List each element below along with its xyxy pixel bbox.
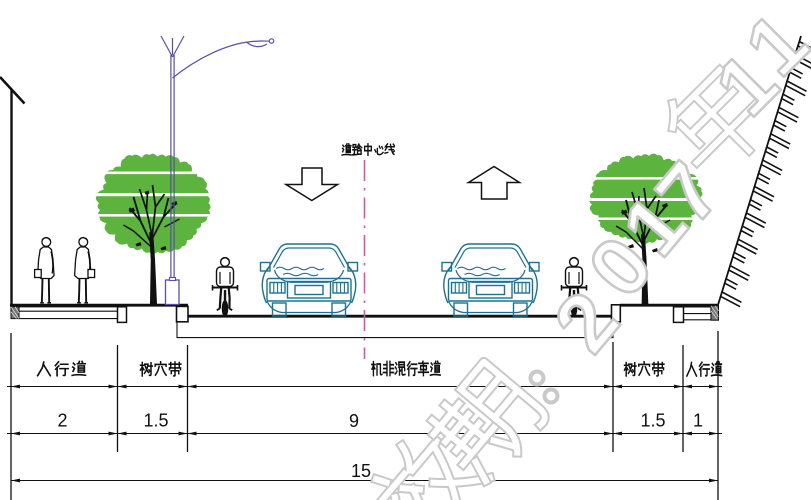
svg-text:1: 1 — [693, 411, 703, 431]
svg-text:1.5: 1.5 — [143, 411, 168, 431]
svg-text:15: 15 — [351, 461, 371, 481]
svg-text:1.5: 1.5 — [640, 411, 665, 431]
svg-text:9: 9 — [349, 411, 359, 431]
svg-text:2: 2 — [57, 411, 67, 431]
